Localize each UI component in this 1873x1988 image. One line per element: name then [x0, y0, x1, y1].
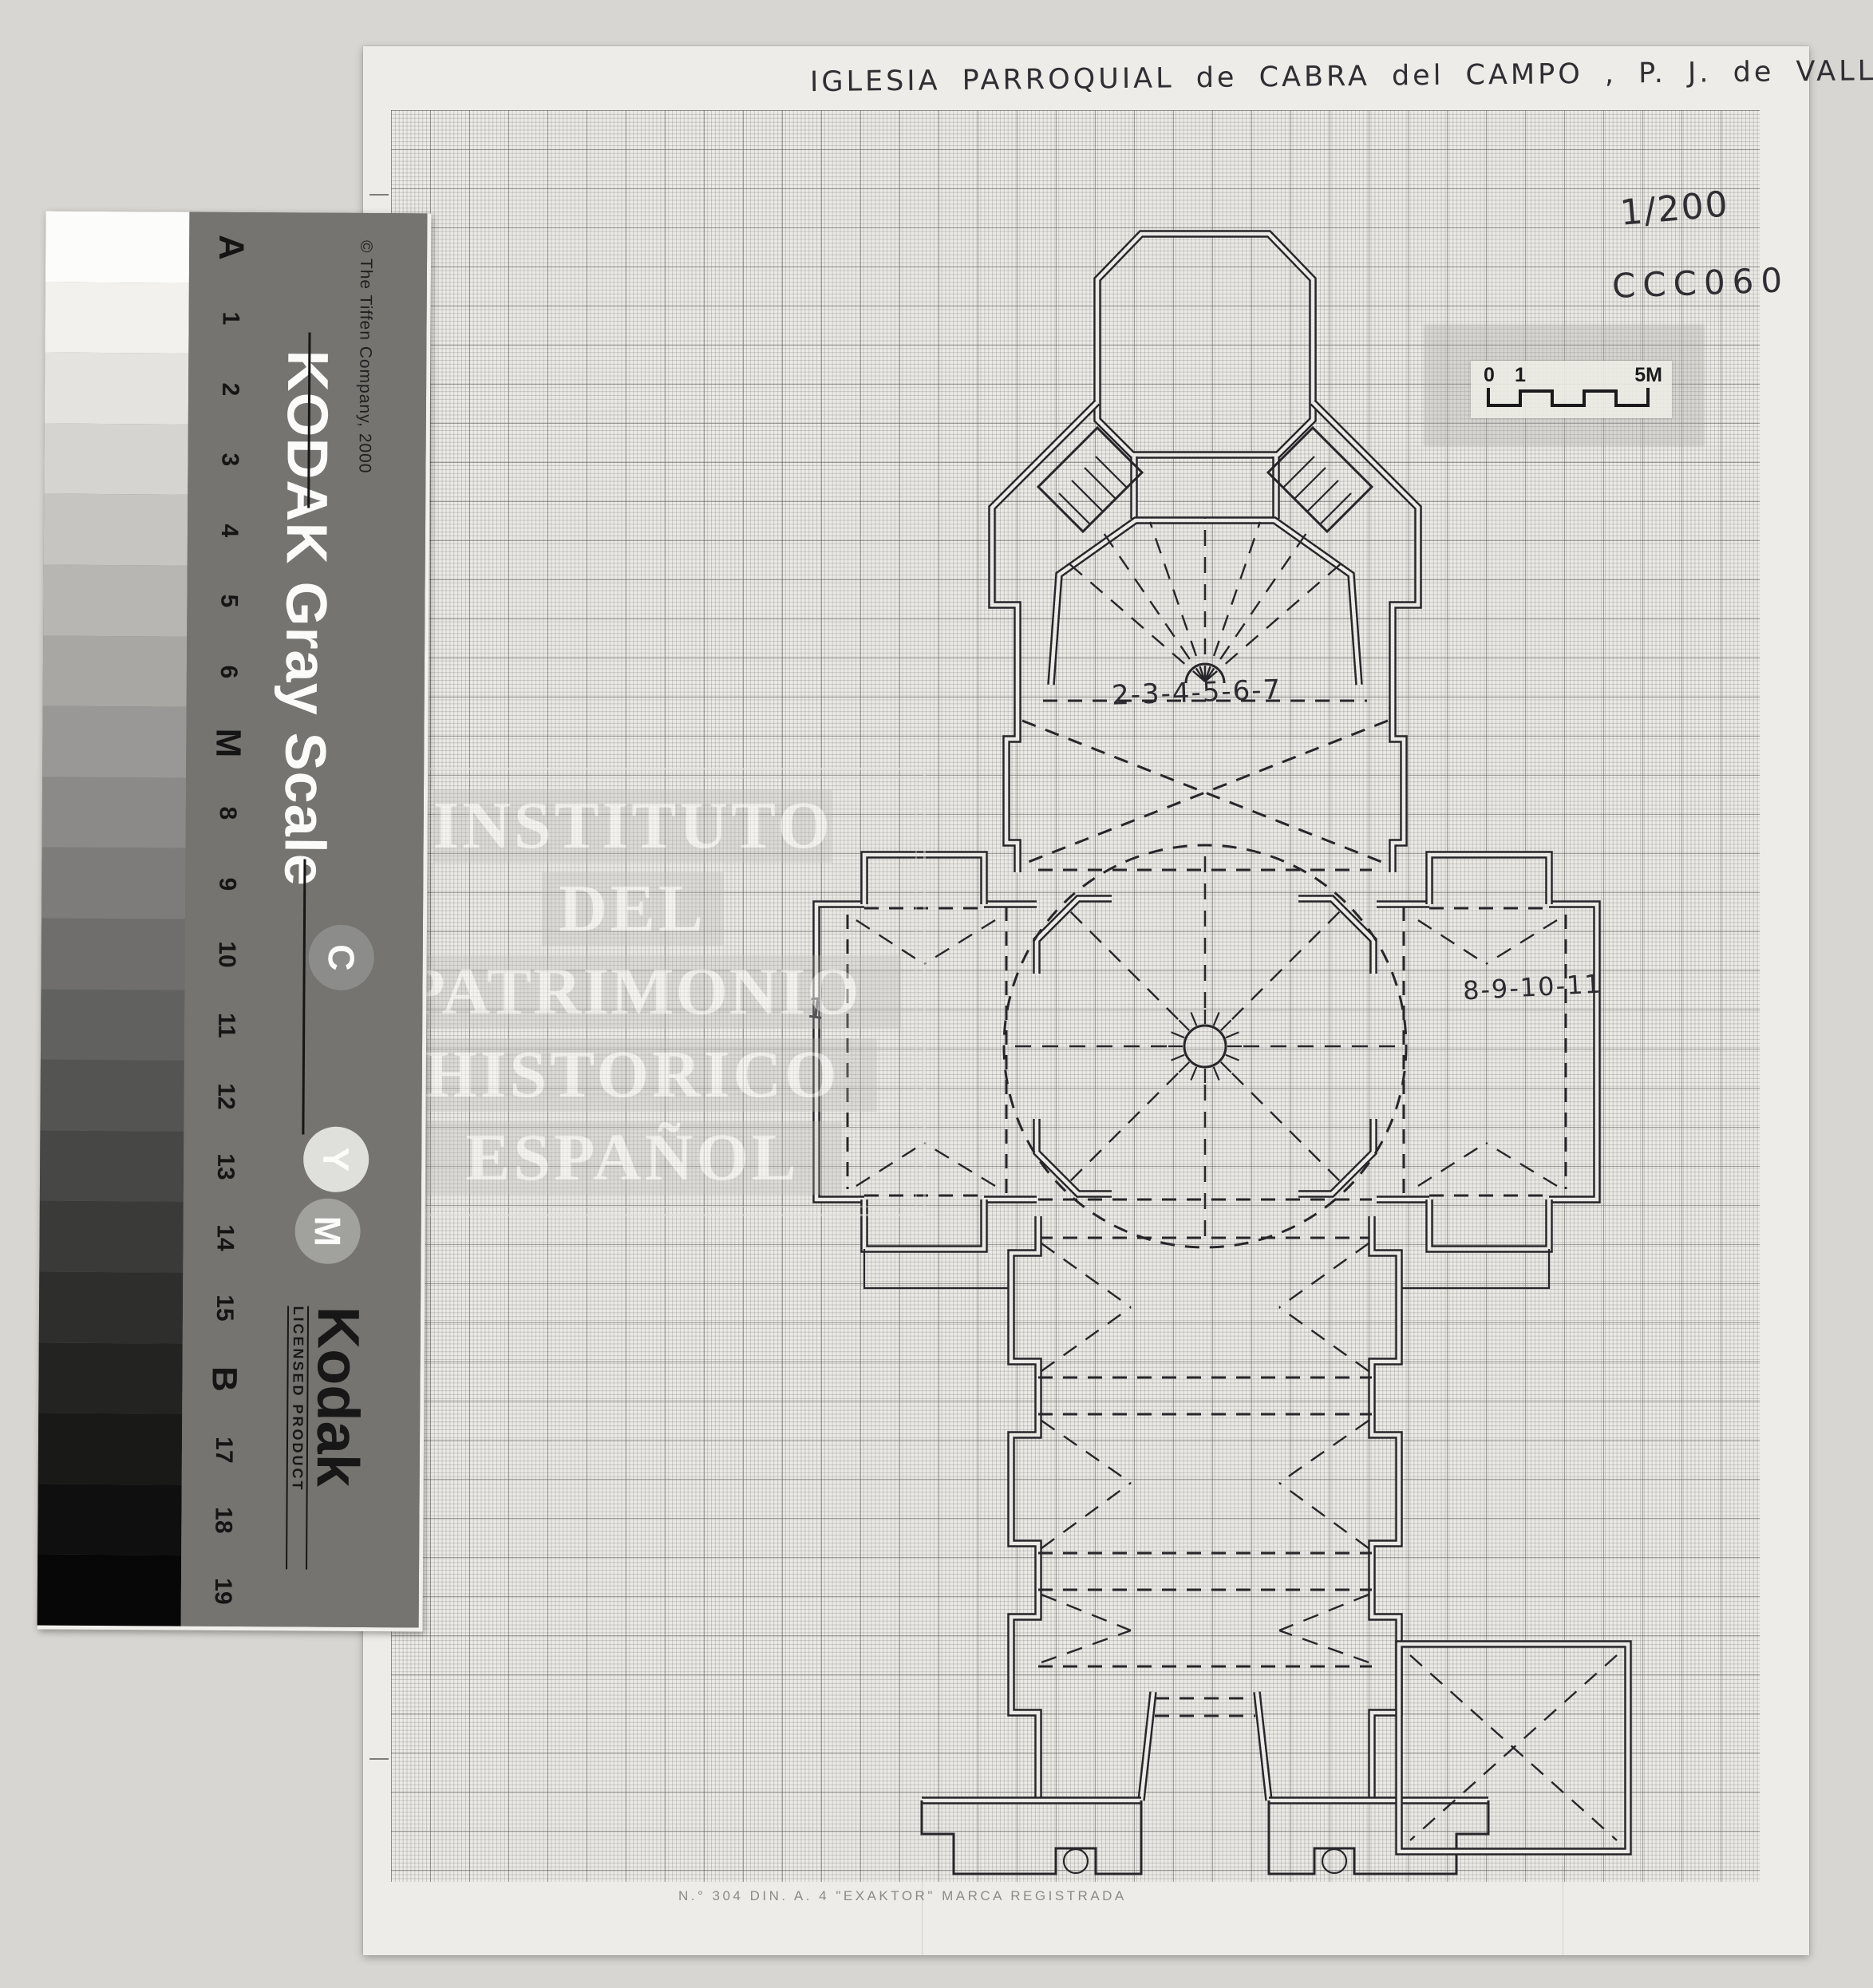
step-label-1: 1	[206, 293, 254, 344]
plan-line	[1214, 1067, 1219, 1081]
gray-patch-19	[38, 1555, 182, 1626]
gray-patch-17	[38, 1413, 183, 1485]
plan-line	[1232, 1073, 1345, 1186]
gray-patch-5	[43, 565, 188, 637]
plan-wall	[984, 904, 1037, 1200]
wall-inner	[1429, 1200, 1549, 1249]
wall-inner	[816, 904, 864, 1200]
gray-patch-1	[45, 282, 189, 354]
gray-patch-12	[40, 1060, 184, 1132]
step-label-M: M	[204, 717, 251, 768]
wall-inner	[1393, 707, 1404, 872]
drawing-sheet: IGLESIA PARROQUIAL de CABRA del CAMPO , …	[363, 46, 1809, 1955]
scanned-archive-photo: { "document": { "title_handwritten": "IG…	[0, 0, 1873, 1988]
gray-patch-18	[38, 1484, 182, 1555]
scale-bar: 0 1 5M	[1471, 361, 1672, 418]
plan-line	[1221, 1020, 1231, 1030]
step-label-8: 8	[204, 788, 251, 839]
scale-bar-five-m: 5M	[1634, 364, 1662, 387]
wall-inner	[864, 1200, 984, 1249]
plan-label-presbytery: 2-3-4-5-6-7	[1111, 674, 1282, 711]
gray-patch-B	[38, 1342, 183, 1414]
plan-line	[1179, 1062, 1189, 1073]
kodak-gray-scale-strip: © The Tiffen Company, 2000 KODAK Gray Sc…	[38, 211, 432, 1632]
gray-patch-15	[39, 1271, 184, 1343]
margin-tick	[369, 194, 389, 196]
step-label-10: 10	[203, 929, 251, 980]
plan-wall	[1037, 1119, 1112, 1194]
step-label-13: 13	[201, 1141, 249, 1192]
gray-patch-4	[44, 494, 188, 566]
plan-wall	[864, 855, 984, 904]
step-label-11: 11	[202, 1000, 250, 1051]
plan-line	[1065, 1073, 1178, 1186]
sheet-footer: N.° 304 DIN. A. 4 "EXAKTOR" MARCA REGIST…	[678, 1888, 1127, 1904]
plan-line	[1214, 1013, 1219, 1026]
wall-inner	[1298, 1119, 1373, 1194]
wall-inner	[1141, 1692, 1269, 1800]
scale-bar-one: 1	[1515, 364, 1526, 387]
wall-inner	[1011, 1216, 1038, 1800]
step-label-6: 6	[204, 646, 252, 698]
plan-line	[1191, 1067, 1196, 1081]
step-label-2: 2	[206, 363, 254, 414]
licensed-product-label: LICENSED PRODUCT	[286, 1306, 309, 1569]
plan-line	[1065, 907, 1178, 1019]
gray-patch-11	[41, 989, 185, 1061]
plan-wall	[1429, 1200, 1549, 1249]
step-label-17: 17	[200, 1424, 247, 1475]
step-label-12: 12	[201, 1070, 249, 1121]
gray-patch-9	[41, 848, 186, 919]
plan-line	[1221, 1062, 1231, 1073]
wall-inner	[1006, 707, 1018, 872]
wall-inner	[864, 855, 984, 904]
magenta-patch-circle: M	[294, 1198, 360, 1263]
plan-line	[1172, 1032, 1185, 1037]
gray-patch-10	[41, 918, 185, 990]
step-label-B: B	[200, 1354, 247, 1405]
wall-inner	[1298, 899, 1373, 974]
step-label-19: 19	[199, 1565, 247, 1616]
plan-wall	[1429, 855, 1549, 904]
paper-crease	[1563, 1866, 1563, 1955]
plan-line	[1226, 1055, 1239, 1061]
gray-patch-14	[39, 1201, 184, 1273]
wall-inner	[1097, 234, 1313, 455]
plan-line	[1226, 1032, 1239, 1037]
plan-line	[1179, 1020, 1189, 1030]
step-label-A: A	[207, 222, 255, 273]
scale-bar-zero: 0	[1484, 364, 1495, 387]
gray-patch-6	[43, 635, 188, 707]
gray-patch-3	[44, 423, 188, 495]
plan-wall	[1141, 1692, 1269, 1800]
wall-inner	[1037, 1119, 1112, 1194]
tiffen-copyright: © The Tiffen Company, 2000	[349, 240, 375, 671]
gray-patch-2	[45, 353, 189, 425]
plan-line	[1191, 1013, 1196, 1026]
gray-patch-13	[40, 1130, 184, 1202]
plan-wall	[1549, 904, 1597, 1200]
step-label-15: 15	[200, 1283, 248, 1334]
plan-wall	[1037, 899, 1112, 974]
gray-patch-M	[42, 706, 187, 778]
step-label-18: 18	[199, 1495, 247, 1546]
step-label-9: 9	[203, 858, 251, 909]
plan-wall	[1097, 234, 1313, 455]
gray-scale-patches	[38, 211, 190, 1626]
margin-tick	[369, 1758, 389, 1760]
wall-inner	[1372, 1216, 1399, 1800]
scale-bar-tape: 0 1 5M	[1425, 326, 1704, 445]
yellow-patch-circle: Y	[303, 1127, 369, 1192]
wall-inner	[1429, 855, 1549, 904]
kodak-logo: Kodak	[310, 1306, 365, 1628]
step-label-4: 4	[205, 504, 253, 555]
wall-inner	[984, 904, 1037, 1200]
gray-scale-label-band: © The Tiffen Company, 2000 KODAK Gray Sc…	[181, 212, 428, 1628]
plan-line	[1172, 1055, 1185, 1061]
gray-patch-8	[42, 777, 187, 848]
step-label-3: 3	[205, 434, 253, 485]
wall-inner	[1549, 904, 1597, 1200]
plan-line	[1232, 907, 1345, 1019]
wall-inner	[1037, 899, 1112, 974]
cyan-patch-circle: C	[308, 925, 373, 990]
step-label-5: 5	[204, 575, 252, 626]
plan-wall	[816, 904, 864, 1200]
plan-wall	[864, 1200, 984, 1249]
plan-wall	[1298, 1119, 1373, 1194]
gray-patch-A	[45, 211, 190, 283]
kodak-brand-block: Kodak LICENSED PRODUCT	[286, 1306, 365, 1627]
paper-crease	[922, 1866, 923, 1955]
plan-wall	[1298, 899, 1373, 974]
reference-code: CCC060	[1611, 260, 1790, 306]
step-label-14: 14	[200, 1211, 248, 1263]
